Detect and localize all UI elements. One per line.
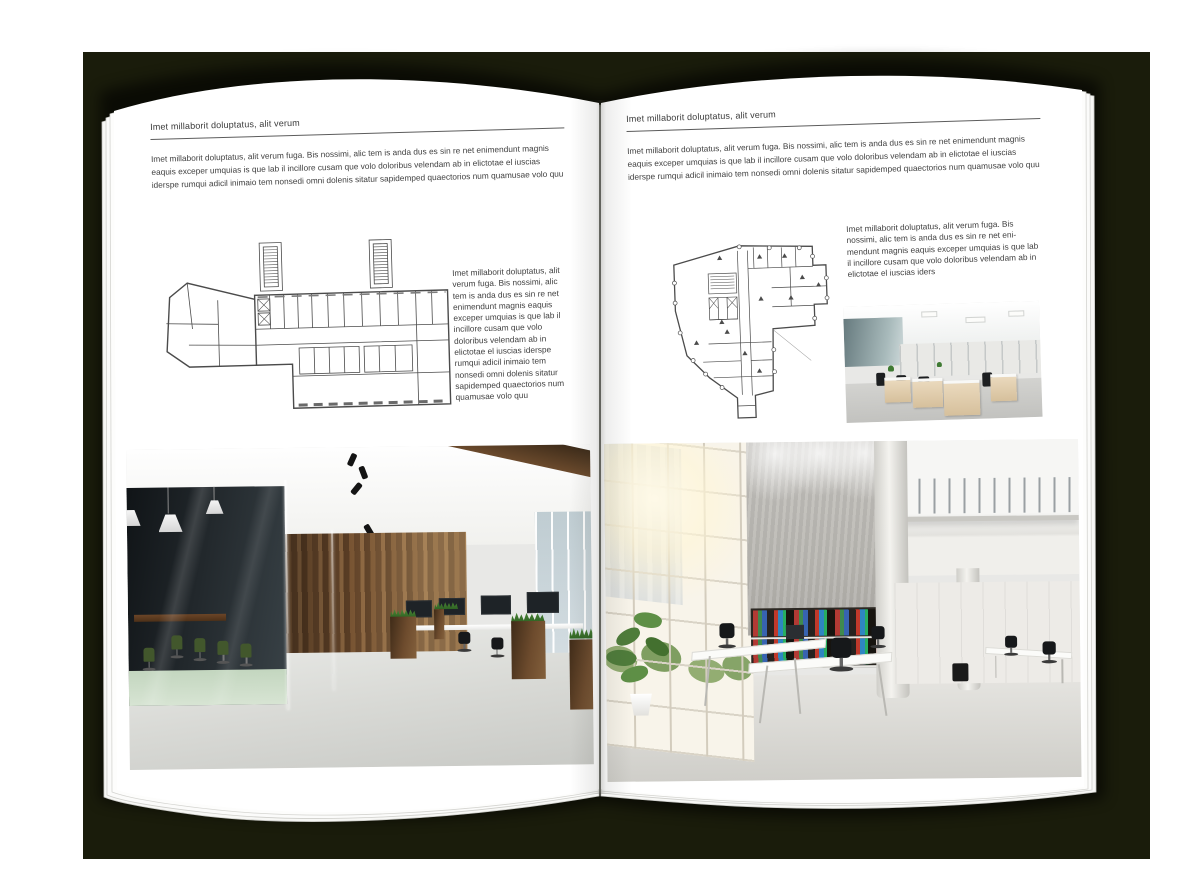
green-chair: [142, 648, 155, 672]
wood-planter: [390, 616, 417, 658]
left-figure-caption: Imet millaborit doluptatus, alit verum f…: [452, 265, 574, 404]
sun-glare: [604, 439, 741, 645]
office-chair: [1041, 641, 1057, 663]
office-chair: [1004, 636, 1018, 656]
left-page-head-block: Imet millaborit doluptatus, alit verum I…: [150, 110, 566, 191]
office-chair: [829, 637, 853, 671]
office-chair: [871, 626, 887, 648]
balcony-railing: [889, 477, 1079, 514]
right-office-photo: [604, 439, 1082, 782]
wood-planter: [434, 609, 444, 639]
window-wall: [604, 439, 754, 763]
green-chair: [240, 644, 253, 668]
lamp-cord: [167, 488, 168, 514]
balcony-fascia: [889, 515, 1079, 522]
cabinet-wall: [895, 581, 1081, 684]
back-partition-wall: [899, 340, 1041, 377]
left-office-photo: [126, 444, 594, 770]
wood-cabinet-desk: [912, 378, 943, 408]
desk-plant: [888, 366, 894, 372]
wood-cabinet-desk: [943, 379, 980, 415]
ceiling-light: [965, 316, 985, 323]
magazine-spread-mockup: Imet millaborit doluptatus, alit verum I…: [0, 0, 1200, 891]
ceiling-light: [922, 311, 938, 317]
wood-planter: [511, 621, 546, 679]
monitor: [480, 596, 510, 615]
green-chair: [216, 641, 229, 665]
pendant-lamp: [205, 500, 223, 514]
office-chair: [490, 637, 504, 657]
pendant-lamp: [158, 514, 182, 532]
left-floor-plan: [156, 232, 453, 418]
monitor: [786, 624, 804, 638]
green-chair: [193, 638, 206, 662]
conference-table: [134, 613, 226, 621]
desk-leg: [1061, 659, 1063, 683]
mezzanine-balcony: [888, 439, 1079, 576]
meeting-room-floor: [129, 669, 287, 706]
desk-leg: [995, 656, 997, 678]
wood-cabinet-desk: [884, 377, 911, 403]
right-figure-caption: Imet millaborit doluptatus, alit verum f…: [846, 218, 1040, 281]
wood-cabinet-desk: [990, 373, 1017, 401]
pendant-lamp: [126, 510, 141, 526]
waste-bin: [952, 663, 968, 681]
right-floor-plan: [648, 207, 851, 428]
ceiling-light: [1008, 311, 1024, 317]
right-page-head-block: Imet millaborit doluptatus, alit verum I…: [626, 101, 1042, 184]
lamp-cord: [213, 487, 214, 501]
desk-plant: [937, 362, 942, 367]
upper-glass-wall: [843, 317, 903, 368]
monitor: [527, 592, 559, 613]
small-office-photo: [843, 301, 1043, 423]
wood-planter: [569, 639, 594, 709]
office-chair: [458, 631, 472, 651]
glass-meeting-room: [126, 486, 286, 706]
office-chair: [718, 623, 736, 648]
green-chair: [170, 635, 183, 659]
